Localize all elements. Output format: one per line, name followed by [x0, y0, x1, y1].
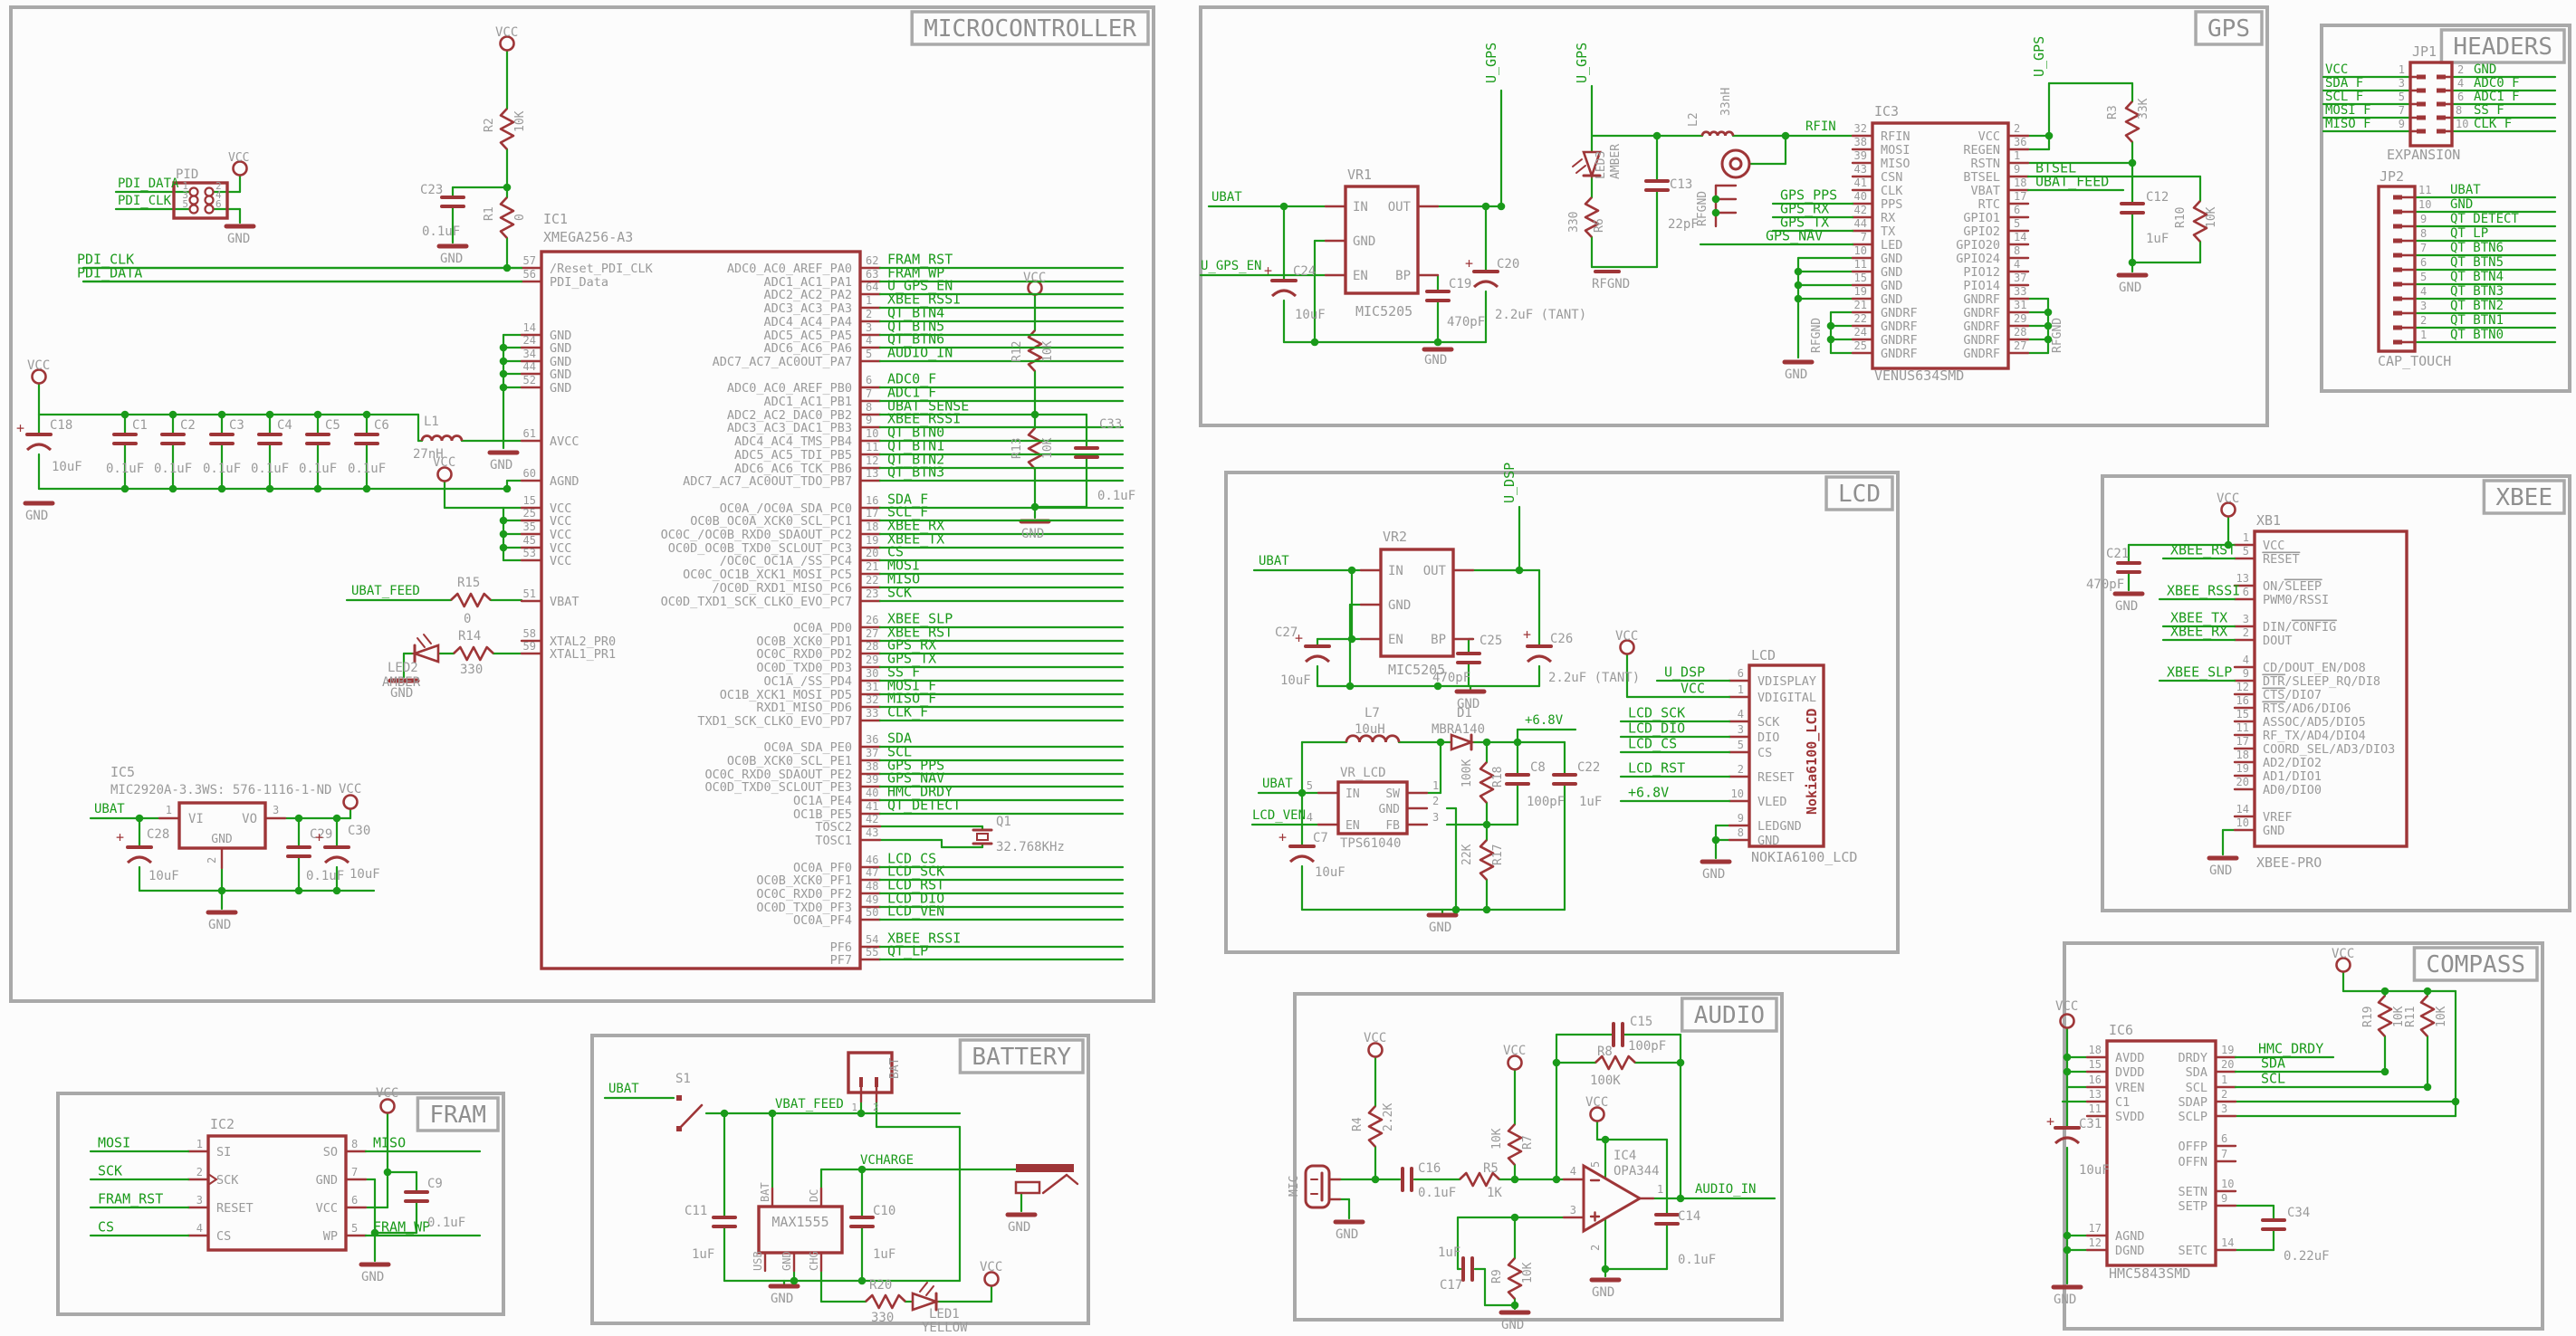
text-label: 1 — [1432, 779, 1439, 792]
net-label: CS — [98, 1219, 114, 1236]
text-label: + — [1278, 829, 1287, 845]
text-label: RFGND — [1810, 318, 1824, 353]
junction-dot — [2129, 159, 2137, 167]
diode-symbol — [1451, 735, 1471, 749]
vcc-symbol — [2061, 1015, 2074, 1028]
pin-name: PIO12 — [1963, 265, 2000, 280]
resistor-symbol — [2421, 996, 2434, 1036]
text-label: GND — [1424, 353, 1447, 367]
pin-number: 8 — [866, 401, 872, 414]
resistor-symbol — [501, 109, 513, 149]
pin-name: GND — [1881, 292, 1902, 307]
pin-name: ADC2_AC2_PA2 — [763, 288, 852, 302]
net-label: XBEE_RSSI — [2167, 583, 2240, 599]
pin-name: VREN — [2115, 1081, 2145, 1095]
net-label: U_DSP — [1501, 463, 1518, 503]
pad — [2437, 116, 2446, 120]
text-label: 4 — [2457, 77, 2464, 90]
junction-dot — [1511, 1302, 1519, 1310]
net-label: +6.8V — [1628, 785, 1669, 801]
pin-name: GNDRF — [1963, 320, 2000, 334]
pin-name: PPS — [1881, 197, 1902, 212]
resistor-symbol — [2379, 996, 2391, 1036]
junction-dot — [1712, 836, 1720, 845]
pin-number: 45 — [523, 534, 536, 547]
text-label: 7 — [2420, 242, 2427, 254]
text-label: VR2 — [1383, 529, 1407, 545]
text-label: 1uF — [2146, 232, 2169, 246]
text-label: R9 — [1490, 1269, 1504, 1284]
junction-dot — [2064, 1246, 2072, 1255]
net-label: UBAT — [1259, 554, 1289, 568]
pin-number: 18 — [2236, 749, 2249, 761]
led-symbol — [920, 1283, 927, 1292]
pad — [2393, 224, 2402, 229]
pin-name: PWM0/RSSI — [2263, 593, 2329, 607]
text-label: MIC2920A-3.3WS: 576-1116-1-ND — [110, 783, 331, 797]
text-label: GND — [390, 686, 413, 701]
text-label: GND — [2054, 1293, 2076, 1307]
pad — [2417, 116, 2426, 120]
pin-number: 44 — [1854, 217, 1867, 230]
pin-number: 15 — [523, 494, 536, 507]
text-label: VCC — [376, 1086, 398, 1101]
text-label: C15 — [1630, 1015, 1652, 1029]
pin-name: CSN — [1881, 170, 1902, 185]
pad — [2417, 75, 2426, 80]
junction-dot — [2424, 1083, 2432, 1092]
pin-name: /OC0D_RXD1_MISO_PC6 — [713, 581, 852, 596]
text-label: IC6 — [2109, 1022, 2133, 1038]
text-label: 10uF — [52, 460, 82, 474]
pin-name: ASSOC/AD5/DIO5 — [2263, 715, 2366, 730]
resistor-symbol — [1029, 330, 1041, 371]
pin-number: 31 — [866, 681, 878, 693]
text-label: MBRA140 — [1432, 722, 1485, 737]
text-label: R13 — [1010, 438, 1024, 459]
pin-name: OFFN — [2178, 1155, 2207, 1169]
pin-number: 57 — [523, 254, 536, 267]
pin-number: 13 — [2089, 1088, 2102, 1101]
pin-name: RX — [1881, 211, 1895, 225]
junction-dot — [1031, 411, 1039, 419]
text-label: 10K — [513, 110, 527, 132]
pin-name: /SLEEP_RQ/DI8 — [2284, 674, 2380, 689]
text-label: 22pF — [1668, 217, 1699, 232]
block-microcontroller — [11, 7, 1154, 1001]
text-label: R6 — [1593, 218, 1606, 233]
text-label: 2 — [1589, 1245, 1602, 1251]
text-label: RFGND — [1592, 277, 1630, 291]
resistor-symbol — [1508, 1124, 1521, 1165]
text-label: S1 — [675, 1072, 691, 1086]
text-label: Q1 — [996, 815, 1011, 829]
pin-number: 38 — [1854, 136, 1867, 148]
pin-number: 14 — [2014, 231, 2026, 243]
text-label: 10uF — [1295, 308, 1326, 322]
pin-number: 4 — [866, 334, 872, 347]
pin-number: 48 — [866, 880, 878, 892]
text-label: C23 — [420, 183, 443, 197]
inductor-symbol — [422, 436, 462, 442]
text-label: VCC — [27, 358, 50, 373]
junction-dot — [314, 411, 322, 419]
text-label: 470pF — [1432, 671, 1470, 685]
pin-number: 12 — [2236, 681, 2249, 693]
junction-dot — [1602, 1136, 1610, 1144]
net-label: XBEE_RX — [2170, 624, 2227, 640]
pin-name: ADC1_AC1_PB1 — [763, 395, 852, 409]
text-label: + — [1465, 255, 1473, 272]
pin-number: 5 — [1738, 739, 1744, 751]
junction-dot — [790, 1277, 799, 1285]
text-label: IN — [1353, 200, 1368, 215]
net-label: LCD_CS — [1628, 736, 1677, 752]
text-label: HMC5843SMD — [2109, 1265, 2190, 1282]
net-label: GND — [2450, 197, 2473, 212]
text-label: R18 — [1491, 767, 1505, 787]
block-title: MICROCONTROLLER — [924, 15, 1136, 43]
text-label: VCC — [980, 1260, 1002, 1274]
junction-dot — [1346, 682, 1355, 691]
net-label: UBAT — [1262, 777, 1293, 791]
pin-number: 15 — [2089, 1058, 2102, 1071]
net-label: GND — [2474, 62, 2496, 77]
led-symbol — [415, 645, 438, 662]
pin-name: DOUT — [2263, 634, 2293, 648]
text-label: 5 — [2399, 91, 2405, 103]
pin-name: VCC — [2263, 539, 2284, 553]
pin-name: VDISPLAY — [1757, 674, 1816, 689]
net-label: U_GPS — [2031, 36, 2047, 77]
text-label: C26 — [1550, 632, 1573, 646]
pin-number: 19 — [1854, 285, 1867, 298]
led-symbol — [1576, 166, 1585, 173]
text-label: 100K — [1590, 1074, 1621, 1088]
text-label: 2 — [2420, 314, 2427, 327]
junction-dot — [1795, 268, 1803, 276]
junction-dot — [1498, 203, 1506, 211]
junction-dot — [1434, 339, 1442, 347]
pin-number: 17 — [2089, 1222, 2102, 1235]
net-label: RFIN — [1805, 119, 1836, 134]
pin-number: 14 — [2221, 1236, 2234, 1249]
text-label: + — [1523, 626, 1531, 643]
text-label: VCC — [1503, 1044, 1526, 1058]
pin-number: 16 — [2236, 694, 2249, 707]
pin-number: 61 — [523, 427, 536, 440]
text-label: 330 — [871, 1311, 894, 1325]
text-label: 1uF — [873, 1247, 895, 1262]
net-label: U_GPS_EN — [1201, 259, 1261, 273]
net-label: UBAT — [608, 1082, 639, 1096]
text-label: 3 — [2420, 300, 2427, 312]
pad — [190, 205, 198, 214]
text-label: + — [116, 829, 124, 845]
junction-dot — [503, 264, 512, 272]
text-label: + — [16, 420, 24, 436]
junction-dot — [1712, 209, 1720, 217]
text-label: 4 — [1307, 811, 1313, 824]
pin-name: OC0A_PF4 — [793, 913, 852, 928]
pin-name: RF_TX/AD4/DIO4 — [2263, 729, 2366, 743]
net-label: QT_BTN6 — [2450, 241, 2504, 255]
led-symbol — [1573, 159, 1582, 167]
junction-dot — [1511, 1214, 1519, 1222]
pin-number: 2 — [2221, 1088, 2227, 1101]
pin-name: GND — [1881, 279, 1902, 293]
junction-dot — [1483, 739, 1491, 747]
junction-dot — [218, 485, 226, 493]
text-label: EXPANSION — [2387, 147, 2460, 163]
pin-number: 4 — [2014, 258, 2020, 271]
text-label: 3 — [273, 804, 279, 816]
net-label: QT_BTN0 — [2450, 328, 2504, 342]
pin-name: GND — [1757, 834, 1779, 848]
pad — [206, 205, 214, 214]
text-label: C33 — [1099, 417, 1122, 432]
net-label: MOSI_F — [2325, 103, 2371, 118]
text-label: + — [2046, 1113, 2054, 1130]
pin-number: 9 — [866, 414, 872, 426]
pin-number: 41 — [866, 800, 878, 813]
junction-dot — [2129, 259, 2137, 267]
text-label: 0.1uF — [427, 1216, 465, 1230]
text-label: DC — [808, 1189, 820, 1202]
net-label: MOSI — [98, 1135, 130, 1151]
net-label: SCL — [2261, 1071, 2285, 1087]
pin-number: 34 — [523, 348, 536, 360]
pin-name: LED — [1881, 238, 1902, 253]
net-label: VCC — [1681, 681, 1705, 697]
pin-number: 24 — [523, 334, 536, 347]
text-label: 1 — [166, 804, 172, 816]
pin-name: COORD_SEL/AD3/DIO3 — [2263, 742, 2395, 757]
text-label: C27 — [1275, 625, 1298, 640]
text-label: VCC — [433, 455, 455, 470]
connector-box — [848, 1053, 892, 1093]
pin-number: 18 — [866, 520, 878, 533]
inductor-symbol — [1702, 132, 1733, 136]
text-label: 0.1uF — [251, 462, 289, 476]
pin-number: 31 — [2014, 299, 2026, 311]
pin-name: GNDRF — [1963, 347, 2000, 361]
pin-number: 64 — [866, 281, 878, 293]
text-label: R11 — [2404, 1007, 2418, 1027]
pin-number: 5 — [2243, 545, 2249, 558]
pin-number: 58 — [523, 627, 536, 640]
resistor-symbol — [501, 197, 513, 238]
block-title: COMPASS — [2426, 951, 2525, 978]
junction-dot — [2225, 541, 2233, 549]
junction-dot — [1452, 906, 1460, 914]
net-label: CLK_F — [2474, 117, 2512, 131]
pin-number: 13 — [866, 467, 878, 480]
text-label: C3 — [229, 418, 244, 433]
pin-name: SCLP — [2178, 1110, 2207, 1124]
text-label: C13 — [1670, 177, 1692, 192]
power-jack-symbol — [1016, 1164, 1074, 1172]
pin-name: VBAT — [1970, 184, 2000, 198]
text-label: 2.2uF (TANT) — [1495, 308, 1586, 322]
junction-dot — [1553, 1176, 1561, 1184]
text-label: IN — [1388, 564, 1403, 578]
pin-number: 12 — [2089, 1236, 2102, 1249]
pin-name: GNDRF — [1963, 333, 2000, 348]
pin-name: ADC0_AC0_AREF_PA0 — [727, 262, 852, 276]
pin-number: 30 — [866, 667, 878, 680]
net-label: SCK — [887, 585, 912, 601]
pin-name: REGEN — [1963, 143, 2000, 157]
text-label: 0.1uF — [1418, 1186, 1456, 1200]
text-label: 33K — [2137, 98, 2150, 119]
pin-name: WP — [323, 1229, 338, 1244]
junction-dot — [363, 411, 371, 419]
pin-number: 1 — [2243, 531, 2249, 544]
net-label: QT_BTN4 — [2450, 270, 2504, 284]
junction-dot — [333, 887, 341, 895]
pin-name: VDIGITAL — [1757, 691, 1816, 705]
text-label: 1 — [1657, 1183, 1663, 1196]
pin-number: 11 — [2236, 721, 2249, 734]
text-label: 0 — [464, 612, 471, 626]
block-title: HEADERS — [2453, 33, 2552, 61]
pin-number: 14 — [2236, 803, 2249, 816]
text-label: 9 — [2420, 213, 2427, 225]
pin-number: 40 — [866, 787, 878, 799]
pin-number: 20 — [2221, 1058, 2234, 1071]
pin-name: TX — [1881, 224, 1895, 239]
net-label: SS_F — [2474, 103, 2504, 118]
junction-dot — [1031, 503, 1039, 511]
pin-name: C1 — [2115, 1095, 2130, 1110]
text-label: 0.1uF — [306, 869, 344, 883]
net-label: QT_BTN3 — [887, 464, 944, 481]
junction-dot — [2064, 1068, 2072, 1076]
pin-name: BTSEL — [1963, 170, 2000, 185]
pin-number: 36 — [866, 733, 878, 746]
text-label: 10K — [2435, 1006, 2448, 1027]
pin-name: OC0C_RXD0_PF2 — [756, 887, 852, 902]
pin-name: DIN/ — [2263, 620, 2293, 635]
pin-number: 2 — [2243, 626, 2249, 639]
pin-name: DIO — [1757, 730, 1779, 745]
pin-name: TOSC1 — [815, 834, 852, 848]
text-label: R14 — [458, 629, 481, 644]
pin-number: 20 — [866, 547, 878, 559]
pad — [2393, 282, 2402, 287]
pad — [2417, 129, 2426, 134]
pin-number: 6 — [2221, 1132, 2227, 1145]
block-title: GPS — [2207, 15, 2250, 43]
text-label: MIC — [1288, 1176, 1301, 1197]
pin-number: 7 — [866, 387, 872, 400]
pin-name: GND — [550, 341, 571, 356]
pad — [2417, 102, 2426, 107]
text-label: R8 — [1597, 1045, 1613, 1059]
text-label: C22 — [1577, 760, 1600, 775]
text-label: C18 — [50, 418, 72, 433]
pin-number: 40 — [1854, 190, 1867, 203]
pin-number: 27 — [2014, 339, 2026, 352]
pin-name: VCC — [1978, 129, 2000, 144]
pin-name: GNDRF — [1881, 333, 1918, 348]
junction-dot — [2045, 309, 2053, 317]
pin-number: 1 — [866, 294, 872, 307]
pin-number: 52 — [523, 374, 536, 386]
pin-name: PF7 — [830, 953, 852, 968]
pin-number: 2 — [1738, 763, 1744, 776]
pin-number: 33 — [2014, 285, 2026, 298]
net-label: XBEE_SLP — [2167, 664, 2232, 681]
pin-number: 28 — [866, 640, 878, 653]
text-label: MIC5205 — [1355, 303, 1412, 320]
pin-name: CONFIG — [2293, 620, 2337, 635]
text-label: OUT — [1388, 200, 1412, 215]
text-label: 4 — [2420, 285, 2427, 298]
pin-name: SLEEP — [2284, 579, 2322, 594]
pin-name: VCC — [316, 1201, 338, 1216]
text-label: R4 — [1351, 1117, 1365, 1131]
pin-name: CTS — [2263, 688, 2284, 702]
pad — [190, 188, 198, 196]
junction-dot — [2424, 988, 2432, 996]
junction-dot — [500, 384, 508, 392]
net-label: UBAT_FEED — [351, 584, 420, 598]
pin-name: /DIO7 — [2284, 688, 2322, 702]
text-label: 10uF — [1280, 673, 1311, 688]
text-label: 33nH — [1719, 88, 1733, 116]
pin-number: 11 — [1854, 258, 1867, 271]
pin-name: OC0D_TXD0_PD3 — [756, 661, 852, 675]
text-label: 7 — [2399, 104, 2405, 117]
text-label: VO — [242, 812, 257, 826]
text-label: 1 — [2399, 63, 2405, 76]
pin-name: GND — [550, 381, 571, 396]
pin-name: ADC3_AC3_PA3 — [763, 301, 852, 316]
pin-number: 16 — [866, 494, 878, 507]
pin-number: 12 — [866, 454, 878, 467]
net-label: SCK — [98, 1163, 122, 1179]
pin-name: PIO14 — [1963, 279, 2000, 293]
pin-number: 9 — [2243, 667, 2249, 680]
junction-dot — [500, 370, 508, 378]
resistor-symbol — [1029, 428, 1041, 469]
text-label: XMEGA256-A3 — [543, 229, 633, 245]
text-label: 0.1uF — [422, 224, 460, 239]
pin-number: 53 — [523, 547, 536, 559]
text-label: R15 — [457, 576, 480, 590]
net-label: SCL_F — [2325, 90, 2363, 104]
text-label: + — [315, 829, 323, 845]
junction-dot — [169, 485, 177, 493]
pin-number: 21 — [1854, 299, 1867, 311]
text-label: 6 — [215, 198, 222, 210]
junction-dot — [1348, 635, 1356, 644]
text-label: 10K — [1041, 340, 1055, 362]
pin-number: 16 — [2089, 1074, 2102, 1086]
pin-name: VREF — [2263, 810, 2293, 825]
pin-number: 18 — [2014, 177, 2026, 189]
net-label: UBAT — [94, 802, 125, 816]
pin-number: 33 — [866, 707, 878, 720]
pin-number: 11 — [866, 441, 878, 453]
net-label: UBAT — [2450, 183, 2481, 197]
pin-name: OC0D_TXD0_SCLOUT_PE3 — [704, 780, 852, 795]
pin-number: 63 — [866, 268, 878, 281]
vcc-symbol — [344, 796, 358, 809]
polarized-capacitor-symbol — [1474, 282, 1498, 287]
